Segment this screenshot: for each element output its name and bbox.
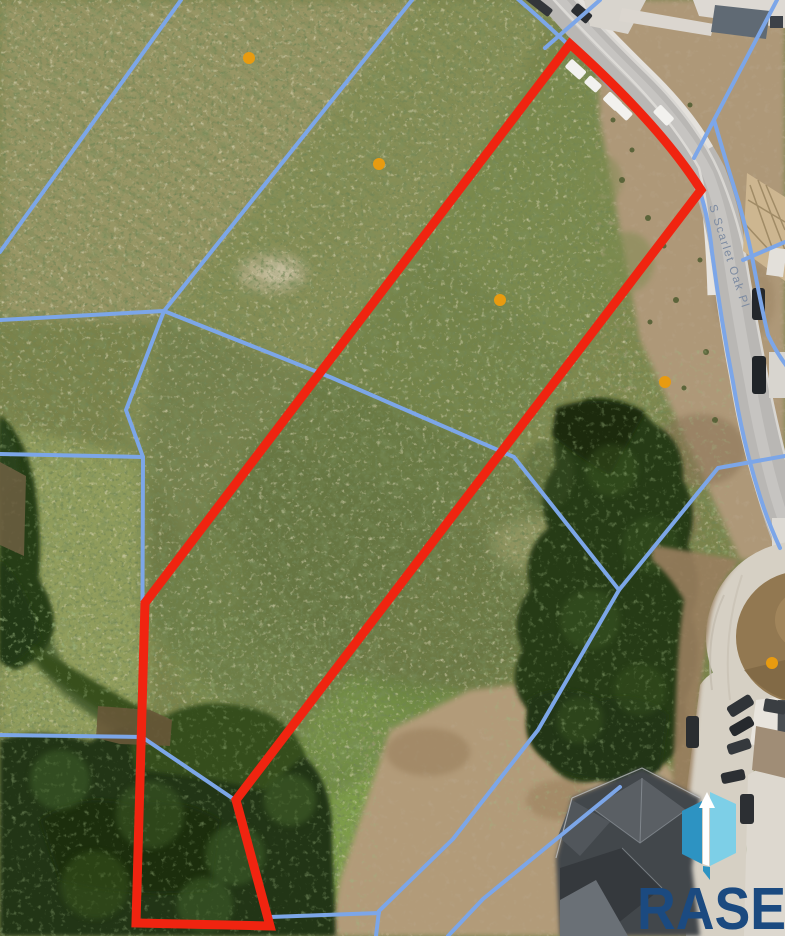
svg-text:RASE: RASE — [637, 876, 785, 936]
